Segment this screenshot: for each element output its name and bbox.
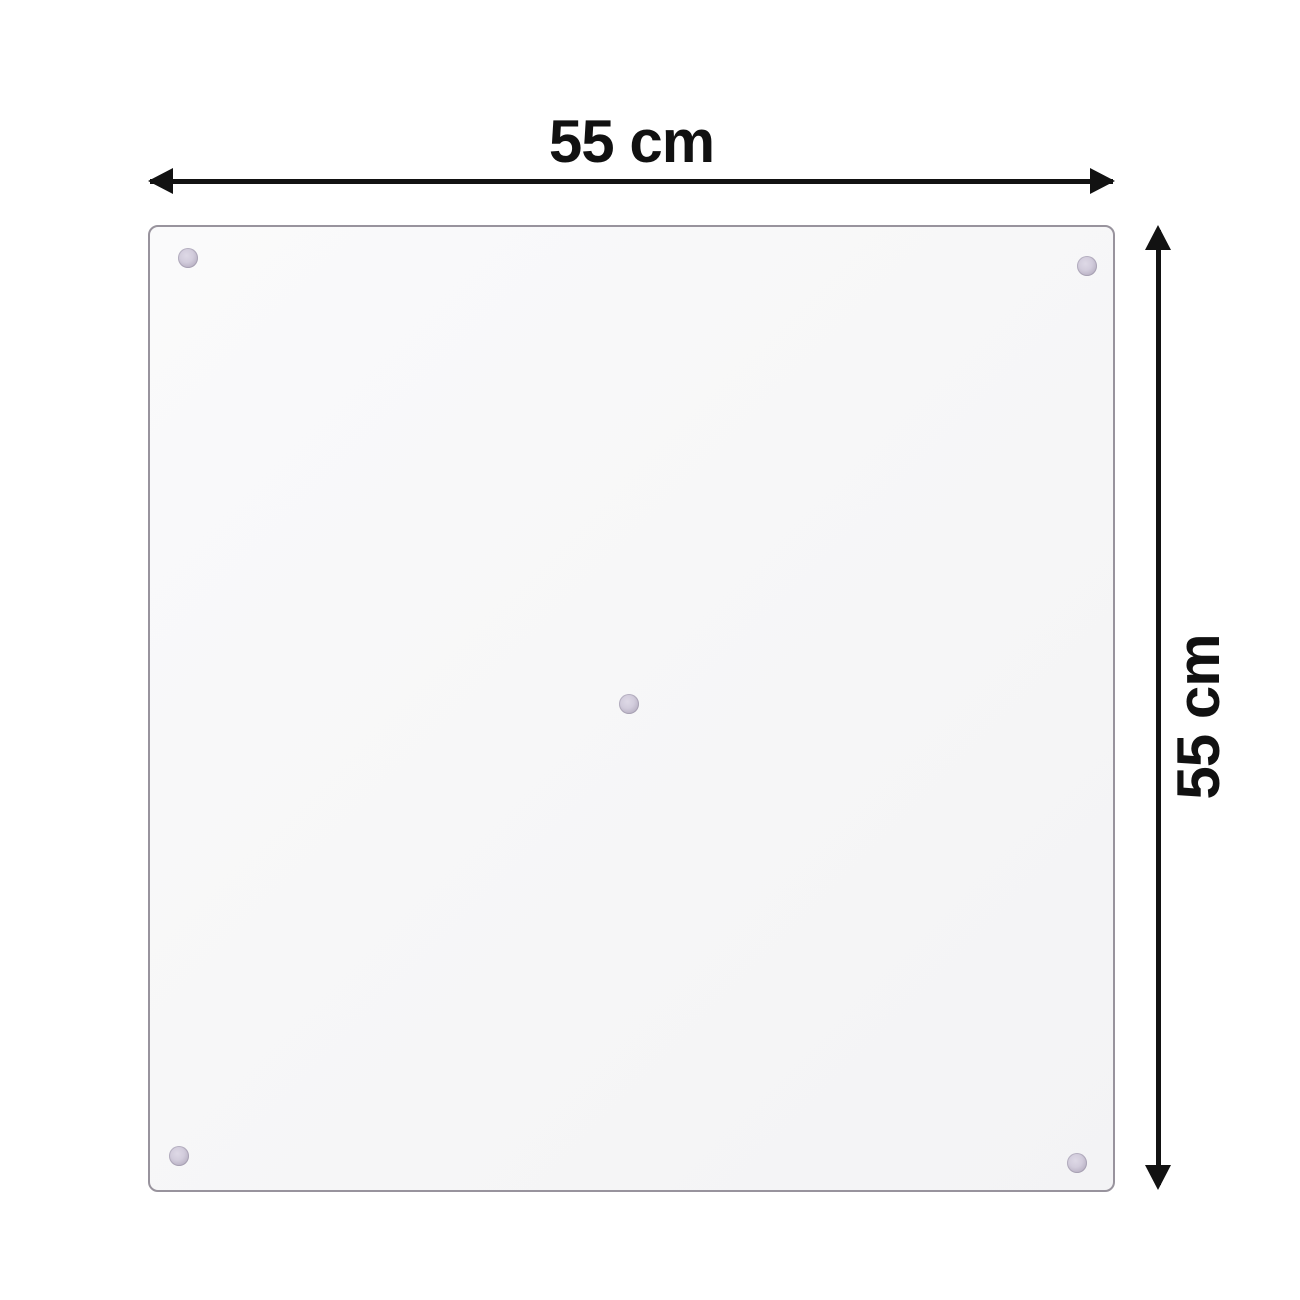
arrow-up-icon bbox=[1145, 225, 1171, 250]
suction-cup-bottom-right bbox=[1067, 1153, 1087, 1173]
arrow-down-icon bbox=[1145, 1165, 1171, 1190]
suction-cup-center bbox=[619, 694, 639, 714]
height-dimension-line bbox=[1156, 230, 1161, 1185]
suction-cup-top-left bbox=[178, 248, 198, 268]
dimension-diagram: 55 cm 55 cm bbox=[0, 0, 1300, 1300]
width-dimension-label: 55 cm bbox=[148, 112, 1115, 172]
suction-cup-top-right bbox=[1077, 256, 1097, 276]
width-dimension-line bbox=[150, 179, 1113, 184]
height-dimension-label: 55 cm bbox=[1169, 634, 1229, 799]
arrow-right-icon bbox=[1090, 168, 1115, 194]
arrow-left-icon bbox=[148, 168, 173, 194]
suction-cup-bottom-left bbox=[169, 1146, 189, 1166]
